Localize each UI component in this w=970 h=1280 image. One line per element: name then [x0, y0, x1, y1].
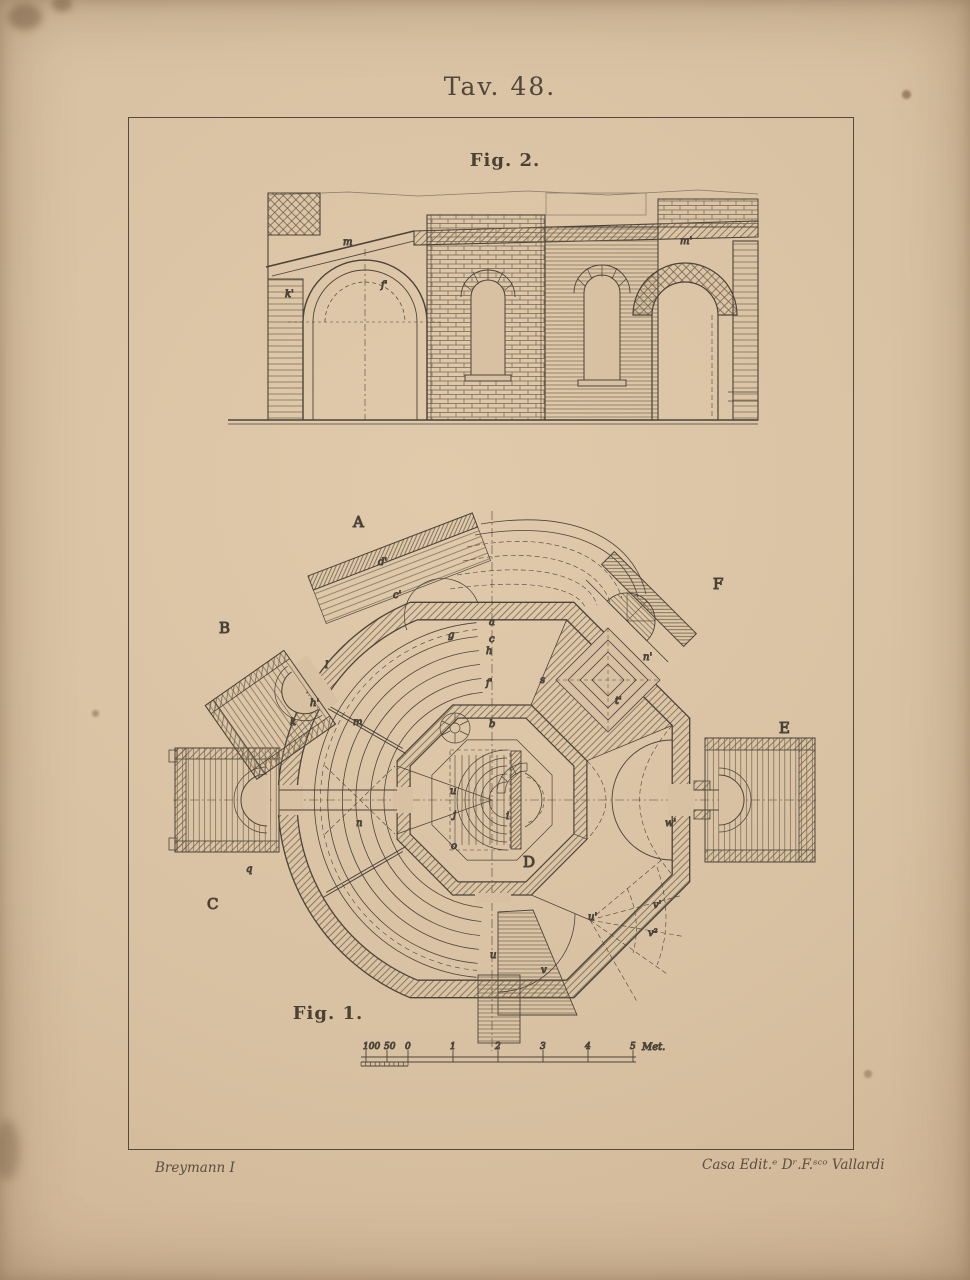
- small-letter-annotation: d': [378, 557, 387, 568]
- small-letter-annotation: v': [653, 900, 661, 911]
- paper-speck: [902, 90, 911, 99]
- paper-stain: [8, 4, 42, 30]
- scale-bar: 10050012345Met.: [356, 1042, 656, 1072]
- small-letter-annotation: m: [343, 237, 352, 248]
- small-letter-annotation: b: [489, 719, 495, 730]
- paper-stain: [52, 0, 72, 12]
- small-letter-annotation: i: [506, 811, 509, 822]
- plate-title: Tav. 48.: [390, 72, 610, 101]
- small-letter-annotation: v²: [648, 928, 658, 939]
- small-letter-annotation: s: [540, 675, 545, 686]
- small-letter-annotation: c: [489, 634, 495, 645]
- big-letter-annotation: C: [207, 895, 218, 913]
- small-letter-annotation: f': [380, 280, 387, 291]
- scale-tick-label: 5: [630, 1042, 636, 1052]
- scale-unit-label: Met.: [641, 1042, 665, 1053]
- small-letter-annotation: h: [486, 646, 492, 657]
- fig1-plan-drawing: d'c'gachf'sblh'kmnqujoin't'w'u'v'v²uvABC…: [145, 495, 845, 1055]
- paper-speck: [92, 710, 99, 717]
- fig2-caption: Fig. 2.: [455, 150, 555, 171]
- small-letter-annotation: u: [450, 786, 456, 797]
- small-letter-annotation: m: [353, 717, 362, 728]
- paper-stain: [0, 1120, 20, 1180]
- big-letter-annotation: E: [779, 719, 790, 737]
- fig2-elevation-drawing: mk'f'm': [228, 187, 758, 427]
- small-letter-annotation: h': [310, 698, 319, 709]
- paper-speck: [864, 1070, 872, 1078]
- small-letter-annotation: t': [615, 696, 622, 707]
- big-letter-annotation: B: [219, 619, 230, 637]
- scale-tick-label: 1: [450, 1042, 456, 1052]
- scale-tick-label: 100: [363, 1042, 380, 1052]
- small-letter-annotation: f': [485, 678, 492, 689]
- small-letter-annotation: n': [643, 652, 652, 663]
- small-letter-annotation: l: [325, 660, 328, 671]
- big-letter-annotation: A: [352, 513, 364, 531]
- scale-tick-label: 4: [584, 1042, 591, 1052]
- plate-photo: Tav. 48. Fig. 2. Fig. 1. Breymann I Casa…: [0, 0, 970, 1280]
- credit-publisher: Casa Edit.ᵉ Dʳ.F.ˢᶜᵒ Vallardi: [702, 1157, 885, 1173]
- big-letter-annotation: F: [713, 575, 723, 593]
- scale-tick-label: 50: [384, 1042, 396, 1052]
- small-letter-annotation: u: [490, 950, 496, 961]
- small-letter-annotation: m': [680, 236, 692, 247]
- small-letter-annotation: n: [356, 818, 362, 829]
- small-letter-annotation: c': [393, 590, 401, 601]
- small-letter-annotation: k': [285, 289, 294, 300]
- scale-tick-label: 2: [494, 1042, 501, 1052]
- small-letter-annotation: a: [489, 617, 495, 628]
- small-letter-annotation: v: [541, 965, 547, 976]
- big-letter-annotation: D: [523, 853, 535, 871]
- small-letter-annotation: j: [451, 810, 456, 821]
- small-letter-annotation: g: [448, 630, 454, 641]
- small-letter-annotation: u': [588, 912, 597, 923]
- small-letter-annotation: k: [290, 717, 296, 728]
- credit-author: Breymann I: [155, 1160, 235, 1176]
- small-letter-annotation: q: [246, 864, 252, 875]
- small-letter-annotation: w': [665, 818, 676, 829]
- scale-tick-label: 0: [405, 1042, 411, 1052]
- small-letter-annotation: o: [451, 841, 457, 852]
- scale-tick-label: 3: [540, 1042, 546, 1052]
